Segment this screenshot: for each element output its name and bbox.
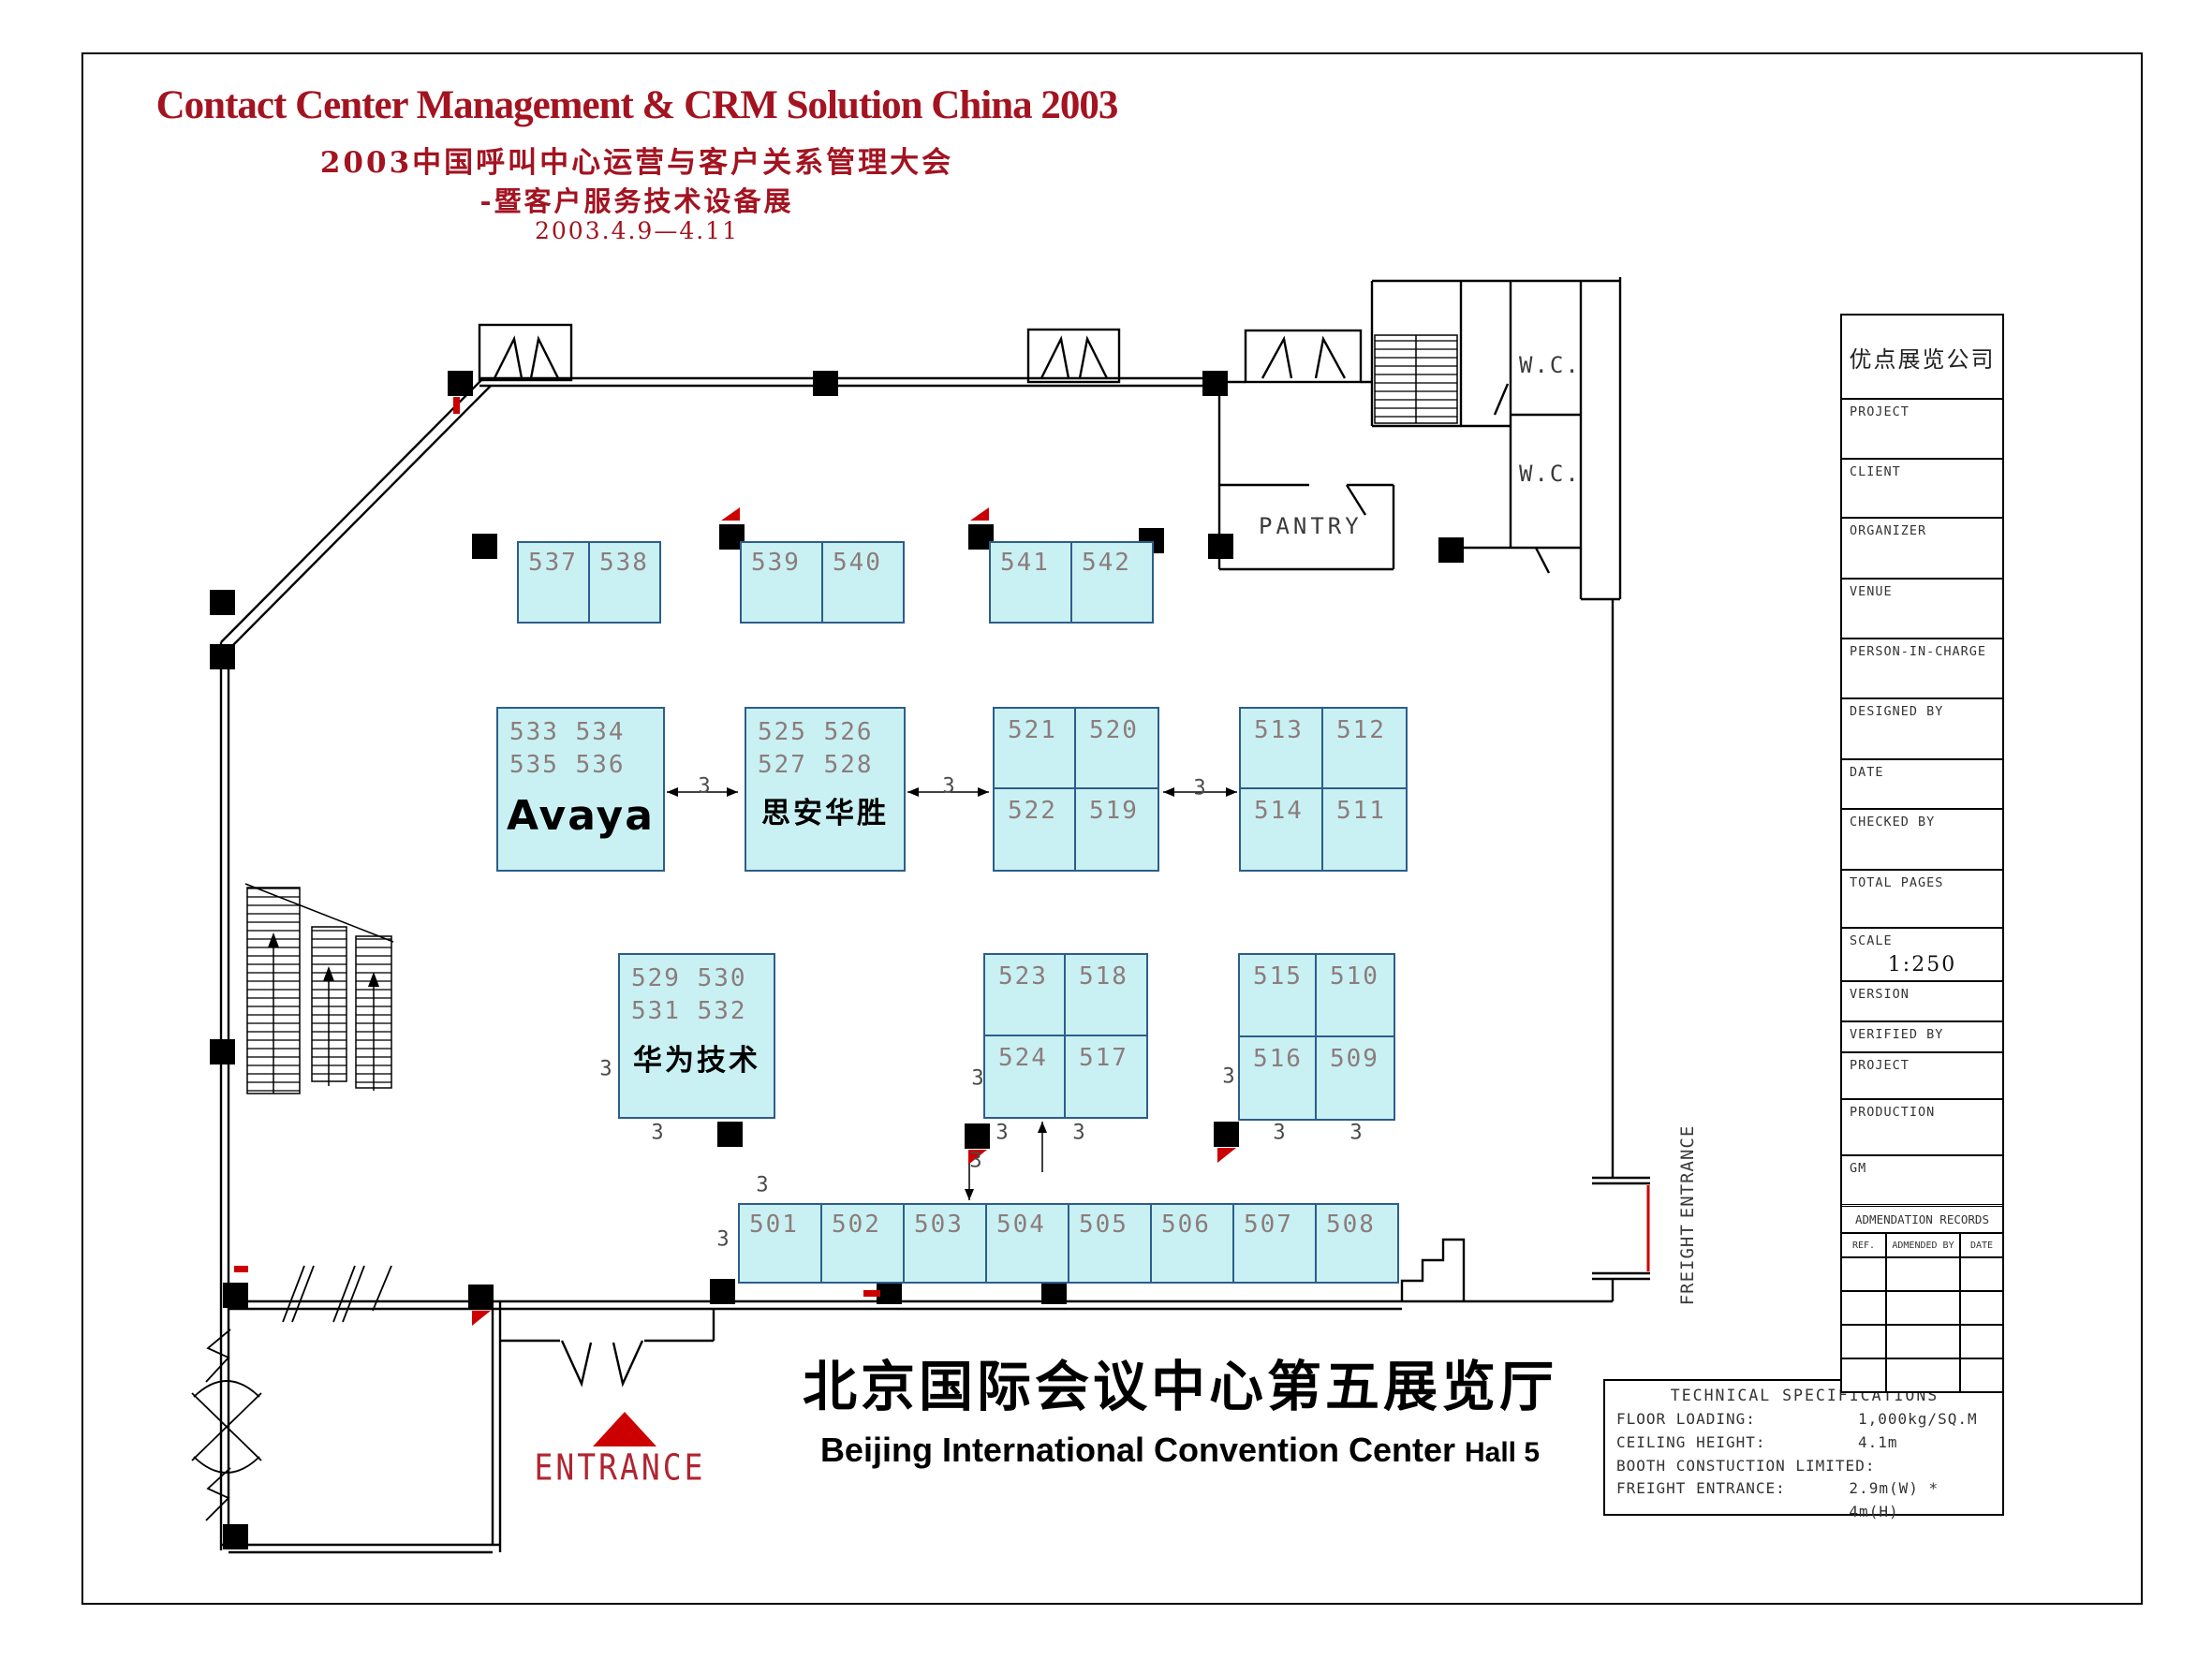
row-label: VERIFIED BY [1850, 1027, 1943, 1042]
records-empty-cell [1961, 1292, 2002, 1324]
booth-506[interactable]: 506 [1152, 1205, 1234, 1282]
freight-word: FREIGHT [1677, 1224, 1698, 1305]
booth-516[interactable]: 516 [1240, 1037, 1317, 1120]
booth-numbers: 525 526527 528 [758, 716, 874, 782]
booth-block: 513512514511 [1239, 707, 1408, 872]
row-label: VERSION [1850, 987, 1910, 1002]
booth-number: 539 [751, 549, 801, 577]
title-block-row-checked-by: CHECKED BY [1842, 808, 2002, 869]
records-empty-cell [1887, 1292, 1961, 1324]
booth-number: 514 [1254, 797, 1304, 825]
spec-value: 2.9m(W) * 4m(H) [1849, 1477, 1993, 1524]
booth-540[interactable]: 540 [823, 543, 903, 622]
records-header-row: REF. ADMENDED BY DATE [1842, 1232, 2002, 1256]
booth-510[interactable]: 510 [1317, 955, 1394, 1037]
subtitle-zh-1: 2003中国呼叫中心运营与客户关系管理大会 [140, 139, 1133, 181]
spec-freight-entrance: FREIGHT ENTRANCE: 2.9m(W) * 4m(H) [1616, 1477, 1993, 1524]
spec-value: 1,000kg/SQ.M [1858, 1408, 1978, 1431]
booth-505[interactable]: 505 [1069, 1205, 1152, 1282]
booth-block: 537538 [517, 541, 661, 624]
booth-number: 504 [996, 1211, 1046, 1239]
booth-number: 531 532 [631, 995, 747, 1028]
dimension-label: 3 [698, 775, 710, 799]
booth-numbers: 533 534535 536 [509, 716, 626, 782]
title-block-row-organizer: ORGANIZER [1842, 517, 2002, 578]
title-block: 优点展览公司 PROJECTCLIENTORGANIZERVENUEPERSON… [1840, 314, 2004, 1393]
booth-524[interactable]: 524 [985, 1036, 1066, 1118]
booth-number: 535 536 [509, 749, 626, 782]
booth-number: 518 [1079, 962, 1128, 991]
row-label: CLIENT [1850, 464, 1901, 479]
records-empty-cell [1961, 1326, 2002, 1358]
booth-number: 537 [528, 549, 578, 577]
booth-number: 505 [1079, 1211, 1128, 1239]
row-label: PERSON-IN-CHARGE [1850, 644, 1986, 659]
booth-思安华胜[interactable]: 525 526527 528思安华胜 [745, 707, 906, 872]
wc-lower-label: W.C. [1519, 461, 1581, 487]
booth-511[interactable]: 511 [1323, 789, 1406, 870]
booth-number: 522 [1008, 797, 1057, 825]
booth-number: 520 [1089, 716, 1139, 744]
dimension-label: 3 [971, 1067, 983, 1091]
booth-number: 515 [1253, 962, 1303, 991]
booth-504[interactable]: 504 [987, 1205, 1069, 1282]
spec-value: 4.1m [1858, 1431, 1898, 1455]
dimension-label: 3 [1273, 1122, 1285, 1145]
booth-522[interactable]: 522 [995, 789, 1076, 870]
exhibitor-name: Avaya [498, 792, 663, 840]
booth-512[interactable]: 512 [1323, 709, 1406, 789]
title-block-rows: PROJECTCLIENTORGANIZERVENUEPERSON-IN-CHA… [1842, 398, 2002, 1204]
row-label: PRODUCTION [1850, 1105, 1935, 1120]
booth-521[interactable]: 521 [995, 709, 1076, 789]
booth-number: 541 [1000, 549, 1050, 577]
booth-513[interactable]: 513 [1241, 709, 1323, 789]
booth-numbers: 529 530531 532 [631, 962, 747, 1028]
venue-name-en: Beijing International Convention Center … [749, 1431, 1611, 1470]
row-label: TOTAL PAGES [1850, 875, 1943, 890]
freight-word2: ENTRANCE [1677, 1125, 1698, 1219]
booth-number: 533 534 [509, 716, 626, 749]
records-empty-row [1842, 1256, 2002, 1290]
booth-number: 506 [1161, 1211, 1211, 1239]
dimension-label: 3 [942, 775, 954, 799]
title-block-row-venue: VENUE [1842, 578, 2002, 638]
booth-number: 521 [1008, 716, 1057, 744]
booth-number: 503 [914, 1211, 964, 1239]
spec-label: BOOTH CONSTUCTION LIMITED: [1616, 1455, 1875, 1478]
records-col-amended: ADMENDED BY [1887, 1234, 1961, 1256]
stairs-left [245, 884, 393, 1094]
booth-number: 524 [998, 1044, 1048, 1072]
records-empty-cell [1842, 1359, 1887, 1391]
booth-number: 538 [599, 549, 649, 577]
booth-number: 519 [1089, 797, 1139, 825]
booth-number: 540 [833, 549, 882, 577]
venue-en-text: Beijing International Convention Center [820, 1431, 1455, 1469]
booth-number: 516 [1253, 1045, 1303, 1073]
booth-block: 515510516509 [1238, 953, 1395, 1121]
amendation-records-title: ADMENDATION RECORDS [1842, 1204, 2002, 1232]
pantry-label: PANTRY [1259, 513, 1363, 539]
booth-block: 521520522519 [993, 707, 1159, 872]
title-block-row-scale: SCALE1:250 [1842, 927, 2002, 980]
floorplan-page: Contact Center Management & CRM Solution… [0, 0, 2212, 1659]
dimension-label: 3 [1072, 1122, 1084, 1145]
dimension-label: 3 [651, 1122, 663, 1145]
spec-label: FLOOR LOADING: [1616, 1408, 1858, 1431]
entrance-arrow-icon [593, 1412, 656, 1446]
title-block-row-designed-by: DESIGNED BY [1842, 697, 2002, 758]
exhibitor-name: 思安华胜 [746, 789, 904, 831]
booth-509[interactable]: 509 [1317, 1037, 1394, 1120]
records-empty-cell [1887, 1258, 1961, 1290]
exhibitor-name: 华为技术 [620, 1036, 774, 1079]
row-label: DESIGNED BY [1850, 704, 1943, 719]
records-empty-row [1842, 1324, 2002, 1358]
title-block-row-date: DATE [1842, 758, 2002, 808]
records-col-ref: REF. [1842, 1234, 1887, 1256]
booth-515[interactable]: 515 [1240, 955, 1317, 1037]
booth-number: 509 [1330, 1045, 1379, 1073]
booth-538[interactable]: 538 [590, 543, 659, 622]
title-block-row-client: CLIENT [1842, 458, 2002, 517]
title-block-row-production: PRODUCTION [1842, 1098, 2002, 1154]
booth-number: 542 [1082, 549, 1131, 577]
freight-entrance-label: FREIGHT ENTRANCE [1658, 1131, 1718, 1299]
row-label: VENUE [1850, 584, 1893, 599]
booth-523[interactable]: 523 [985, 955, 1066, 1036]
records-empty-cell [1961, 1258, 2002, 1290]
dimension-label: 3 [756, 1174, 768, 1197]
title-block-row-total-pages: TOTAL PAGES [1842, 869, 2002, 927]
booth-541[interactable]: 541 [991, 543, 1072, 622]
records-empty-cell [1842, 1258, 1887, 1290]
booth-539[interactable]: 539 [742, 543, 823, 622]
dimension-label: 3 [995, 1122, 1008, 1145]
booth-508[interactable]: 508 [1317, 1205, 1397, 1282]
technical-specifications: TECHNICAL SPECIFICATIONS FLOOR LOADING: … [1603, 1379, 2004, 1516]
title-block-row-verified-by: VERIFIED BY [1842, 1020, 2002, 1051]
dimension-label: 3 [969, 1150, 981, 1173]
row-label: PROJECT [1850, 404, 1910, 419]
title-block-row-gm: GM [1842, 1154, 2002, 1204]
title-block-row-project: PROJECT [1842, 398, 2002, 458]
records-empty-row [1842, 1290, 2002, 1324]
venue-hall: Hall 5 [1465, 1437, 1540, 1468]
booth-number: 529 530 [631, 962, 747, 995]
booth-520[interactable]: 520 [1076, 709, 1158, 789]
booth-number: 510 [1330, 962, 1379, 991]
booth-503[interactable]: 503 [905, 1205, 987, 1282]
booth-block: 541542 [989, 541, 1154, 624]
booth-number: 527 528 [758, 749, 874, 782]
booth-block: 539540 [740, 541, 905, 624]
booth-Avaya[interactable]: 533 534535 536Avaya [496, 707, 665, 872]
dimension-label: 3 [716, 1228, 729, 1252]
booth-519[interactable]: 519 [1076, 789, 1158, 870]
spec-floor-loading: FLOOR LOADING: 1,000kg/SQ.M [1616, 1408, 1993, 1431]
row-label: CHECKED BY [1850, 815, 1935, 829]
booth-518[interactable]: 518 [1066, 955, 1146, 1036]
wc-upper-label: W.C. [1519, 352, 1581, 378]
spec-booth-construction: BOOTH CONSTUCTION LIMITED: [1616, 1455, 1993, 1478]
booth-华为技术[interactable]: 529 530531 532华为技术 [618, 953, 775, 1119]
page-title: Contact Center Management & CRM Solution… [140, 82, 1133, 128]
booth-542[interactable]: 542 [1072, 543, 1152, 622]
records-empty-cell [1887, 1326, 1961, 1358]
booth-number: 511 [1336, 797, 1386, 825]
row-label: SCALE [1850, 933, 1893, 948]
booth-number: 507 [1244, 1211, 1293, 1239]
spec-label: FREIGHT ENTRANCE: [1616, 1477, 1849, 1524]
row-label: ORGANIZER [1850, 523, 1926, 538]
row-label: DATE [1850, 765, 1884, 780]
booth-507[interactable]: 507 [1234, 1205, 1317, 1282]
spec-label: CEILING HEIGHT: [1616, 1431, 1858, 1455]
title-block-row-person-in-charge: PERSON-IN-CHARGE [1842, 638, 2002, 697]
records-empty-cell [1887, 1359, 1961, 1391]
booth-514[interactable]: 514 [1241, 789, 1323, 870]
booth-537[interactable]: 537 [519, 543, 590, 622]
records-empty-cell [1842, 1326, 1887, 1358]
dimension-label: 3 [1222, 1065, 1234, 1089]
red-marks [234, 397, 1648, 1446]
company-name: 优点展览公司 [1842, 316, 2002, 398]
booth-number: 501 [749, 1211, 799, 1239]
booth-number: 523 [998, 962, 1048, 991]
records-empty-row [1842, 1358, 2002, 1391]
records-col-date: DATE [1961, 1234, 2002, 1256]
booth-517[interactable]: 517 [1066, 1036, 1146, 1118]
booth-number: 513 [1254, 716, 1304, 744]
stairs-service [1375, 335, 1457, 423]
records-empty-cell [1842, 1292, 1887, 1324]
booth-number: 512 [1336, 716, 1386, 744]
dimension-label: 3 [599, 1058, 612, 1081]
records-empty-rows [1842, 1256, 2002, 1391]
dimension-label: 3 [1193, 777, 1205, 800]
booth-number: 517 [1079, 1044, 1128, 1072]
booth-502[interactable]: 502 [822, 1205, 905, 1282]
booth-number: 525 526 [758, 716, 874, 749]
row-label: PROJECT [1850, 1058, 1910, 1073]
title-block-row-project: PROJECT [1842, 1051, 2002, 1098]
title-block-row-version: VERSION [1842, 980, 2002, 1020]
booth-block: 501502503504505506507508 [738, 1203, 1399, 1284]
entrance-label: ENTRANCE [517, 1446, 723, 1489]
venue-name-zh: 北京国际会议中心第五展览厅 [749, 1343, 1611, 1421]
booth-number: 502 [832, 1211, 881, 1239]
event-dates: 2003.4.9—4.11 [140, 217, 1133, 244]
booth-501[interactable]: 501 [740, 1205, 822, 1282]
booth-block: 523518524517 [983, 953, 1148, 1119]
subtitle-zh-2: -暨客户服务技术设备展 [140, 180, 1133, 219]
dimension-label: 3 [1349, 1122, 1362, 1145]
records-empty-cell [1961, 1359, 2002, 1391]
row-label: GM [1850, 1161, 1866, 1176]
spec-ceiling-height: CEILING HEIGHT: 4.1m [1616, 1431, 1993, 1455]
booth-number: 508 [1326, 1211, 1376, 1239]
row-value: 1:250 [1842, 953, 2002, 976]
